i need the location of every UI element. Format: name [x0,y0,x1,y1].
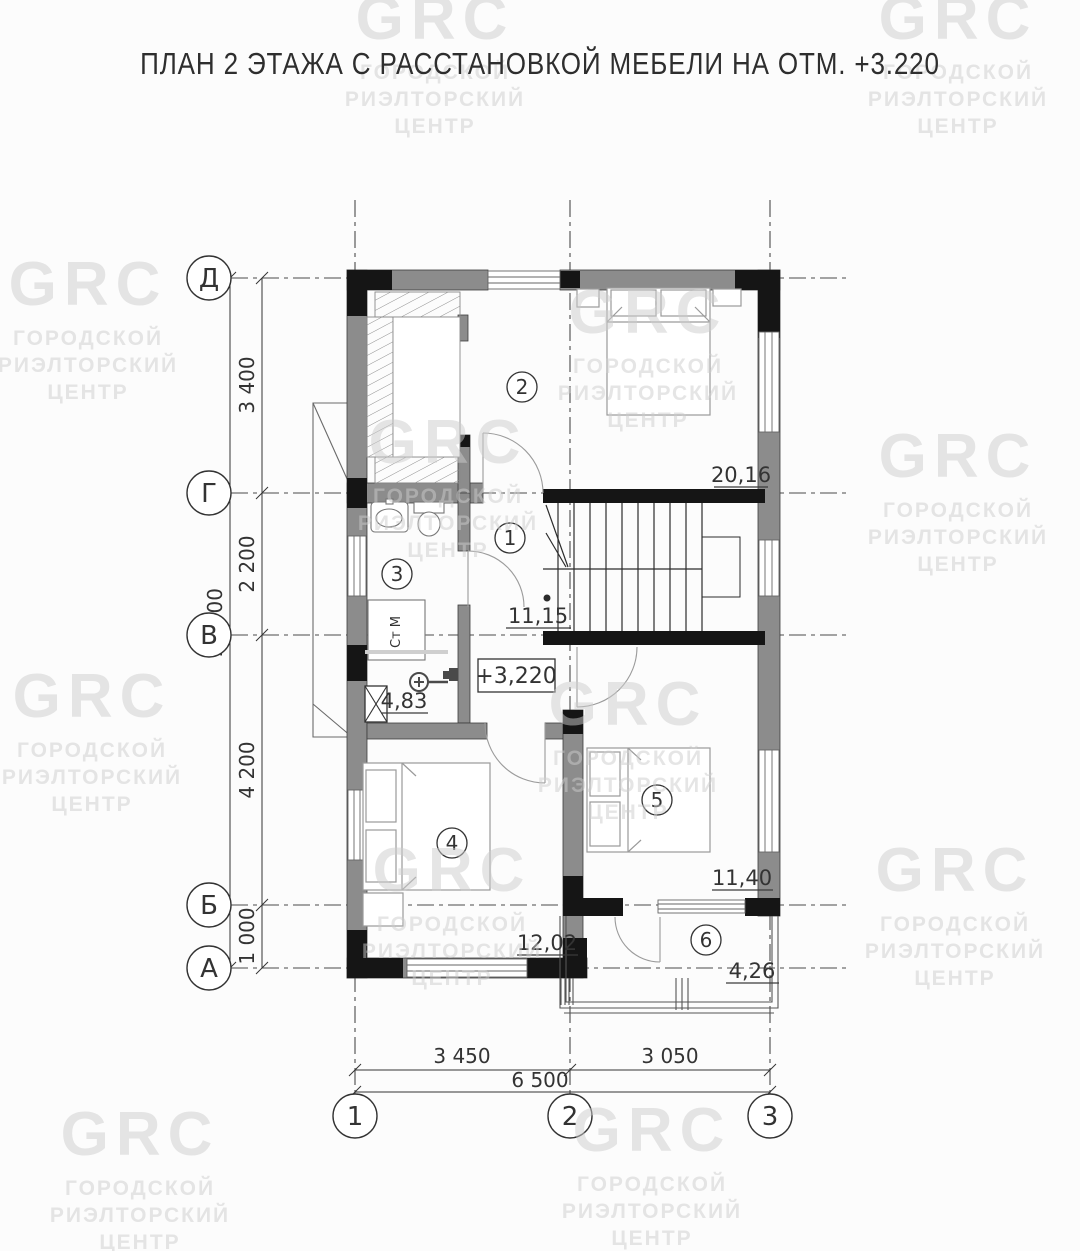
dimension-col-total: 6 500 [511,1068,568,1092]
room-number-5: 5 [651,788,664,812]
drawing-title: ПЛАН 2 ЭТАЖА С РАССТАНОВКОЙ МЕБЕЛИ НА ОТ… [86,46,993,82]
dimension-col-0: 3 450 [433,1044,490,1068]
floor-plan-drawing: Ст М 3 400 2 200 4 200 1 000 10 800 [0,0,1080,1251]
room-area-3: 4,83 [381,689,428,713]
axis-row-label-4: А [200,954,218,984]
dimension-row-0: 3 400 [235,356,259,413]
dimension-row-3: 1 000 [235,907,259,964]
floor-plan-page: GRC ГОРОДСКОЙ РИЭЛТОРСКИЙ ЦЕНТР GRC ГОРО… [0,0,1080,1251]
axis-row-label-3: Б [200,891,218,921]
elevation-mark: +3,220 [475,664,556,689]
axis-col-label-1: 2 [562,1102,579,1132]
roof-projection [313,403,352,737]
toilet-icon [414,502,444,513]
room-area-5: 11,40 [712,866,772,890]
dimension-row-1: 2 200 [235,535,259,592]
room-area-1: 11,15 [508,604,568,628]
axis-row-label-0: Д [199,264,219,294]
room-number-4: 4 [446,831,459,855]
washing-machine-label: Ст М [389,616,404,648]
room-number-1: 1 [504,526,517,550]
room-number-6: 6 [700,928,713,952]
staircase [543,503,740,631]
dimension-col-1: 3 050 [641,1044,698,1068]
dimension-row-2: 4 200 [235,741,259,798]
room-number-3: 3 [391,562,404,586]
axis-row-label-2: В [200,621,218,651]
room-area-4: 12,02 [517,931,577,955]
room-area-2: 20,16 [711,463,771,487]
room-number-2: 2 [516,375,529,399]
axis-col-label-0: 1 [347,1102,364,1132]
boiler-key-icon [410,668,458,691]
axis-row-label-1: Г [201,479,217,509]
wardrobe [367,292,460,483]
room-area-6: 4,26 [729,959,776,983]
axis-col-label-2: 3 [762,1102,779,1132]
